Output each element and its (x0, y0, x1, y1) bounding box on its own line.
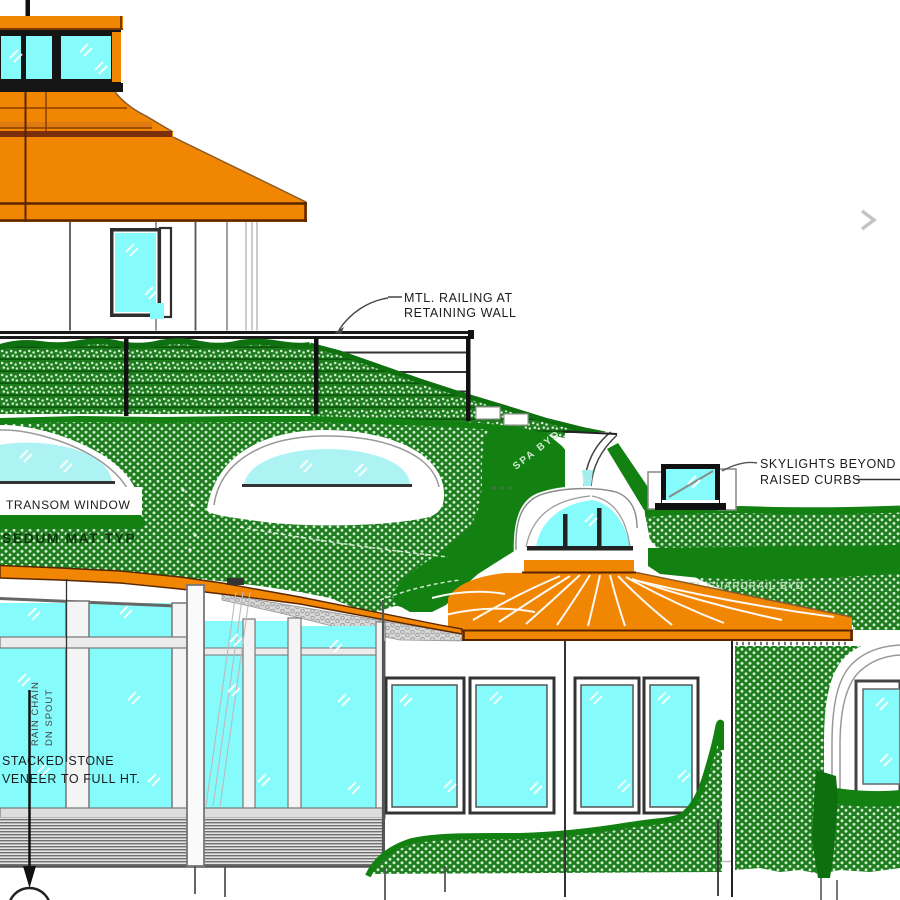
svg-text:VENEER TO FULL HT.: VENEER TO FULL HT. (2, 772, 140, 786)
svg-text:TRANSOM WINDOW: TRANSOM WINDOW (6, 498, 130, 512)
svg-text:SKYLIGHTS BEYOND: SKYLIGHTS BEYOND (760, 457, 896, 471)
svg-text:RAIN CHAIN: RAIN CHAIN (30, 681, 41, 746)
svg-text:SEDUM MAT TYP: SEDUM MAT TYP (2, 530, 136, 546)
svg-text:DN SPOUT: DN SPOUT (44, 689, 55, 746)
svg-text:STACKED STONE: STACKED STONE (2, 754, 114, 768)
svg-text:MTL. RAILING AT: MTL. RAILING AT (404, 291, 513, 305)
svg-text:RAISED CURBS: RAISED CURBS (760, 473, 861, 487)
svg-text:RETAINING WALL: RETAINING WALL (404, 306, 517, 320)
